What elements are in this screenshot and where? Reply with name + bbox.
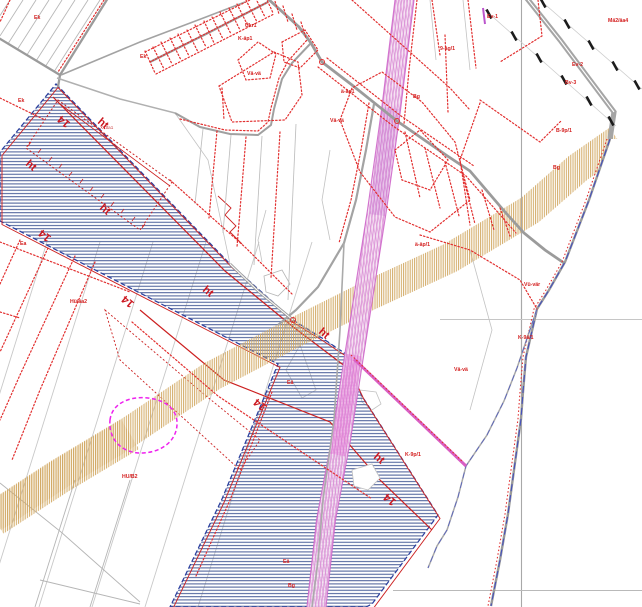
svg-text:Ea: Ea: [20, 241, 26, 247]
svg-text:K-9p/1: K-9p/1: [405, 452, 421, 458]
svg-text:Mä2/äa4: Mä2/äa4: [608, 18, 628, 24]
svg-text:ä-äp/1: ä-äp/1: [415, 242, 430, 248]
svg-text:Ev-1: Ev-1: [487, 14, 498, 20]
svg-text:Bg: Bg: [288, 583, 295, 589]
svg-text:Vü-vär: Vü-vär: [524, 282, 540, 288]
svg-text:9-äg/1: 9-äg/1: [440, 46, 455, 52]
svg-text:K-9ä/1: K-9ä/1: [518, 335, 534, 341]
svg-text:Hü/äa2: Hü/äa2: [70, 299, 87, 305]
svg-text:Eä: Eä: [283, 559, 289, 565]
svg-text:Vä-vä: Vä-vä: [454, 367, 468, 373]
svg-text:ä-äp1: ä-äp1: [341, 89, 355, 95]
svg-text:Ek: Ek: [18, 98, 24, 104]
svg-text:Vä-vä: Vä-vä: [330, 118, 344, 124]
svg-text:Bv-3: Bv-3: [565, 80, 576, 86]
svg-text:B-9p/1: B-9p/1: [556, 128, 572, 134]
svg-text:HU/B2: HU/B2: [122, 474, 138, 480]
svg-text:Bg: Bg: [413, 94, 420, 100]
svg-text:Ek: Ek: [140, 54, 146, 60]
svg-text:Bg: Bg: [553, 165, 560, 171]
svg-text:Ev-2: Ev-2: [572, 62, 583, 68]
svg-text:Ükr1: Ükr1: [245, 22, 257, 29]
svg-text:K-äp1: K-äp1: [238, 36, 253, 42]
svg-text:Vä-vä: Vä-vä: [247, 71, 261, 77]
svg-text:Eä: Eä: [287, 380, 293, 386]
svg-text:Ek: Ek: [34, 15, 40, 21]
